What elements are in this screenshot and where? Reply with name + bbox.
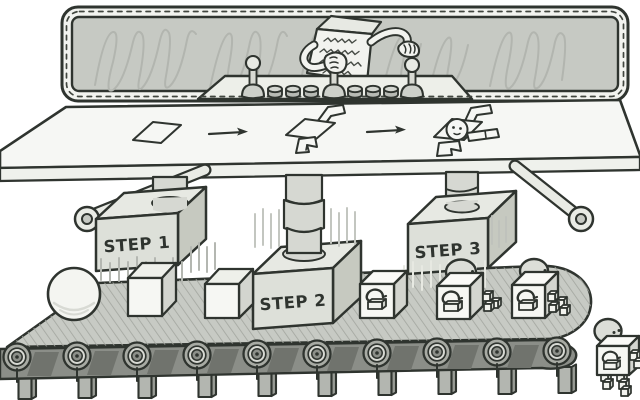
illustration-canvas: STEP 1 STEP 2 STEP 3 — [0, 0, 640, 400]
joystick-ball — [246, 56, 260, 70]
cube-item — [205, 269, 253, 318]
operator-right-hand — [398, 42, 419, 58]
sphere-item — [48, 268, 100, 320]
panel-button — [384, 86, 398, 98]
workbench-table — [0, 100, 640, 181]
panel-button — [304, 86, 318, 98]
panel-button — [366, 86, 380, 98]
press-step-1: STEP 1 — [96, 177, 206, 271]
walking-robot — [595, 319, 640, 396]
assembly-line-illustration: STEP 1 STEP 2 STEP 3 — [0, 0, 640, 400]
panel-button — [348, 86, 362, 98]
press-step-2: STEP 2 — [253, 175, 361, 329]
window-panel — [62, 7, 628, 101]
printed-box-item — [360, 271, 407, 318]
cube-item — [128, 263, 176, 316]
piston-column — [284, 175, 324, 253]
panel-button — [286, 86, 300, 98]
blueprint-face — [447, 119, 468, 140]
operator-left-hand — [324, 52, 346, 73]
table-leg-right — [515, 166, 593, 231]
panel-button — [268, 86, 282, 98]
joystick-ball — [405, 58, 419, 72]
